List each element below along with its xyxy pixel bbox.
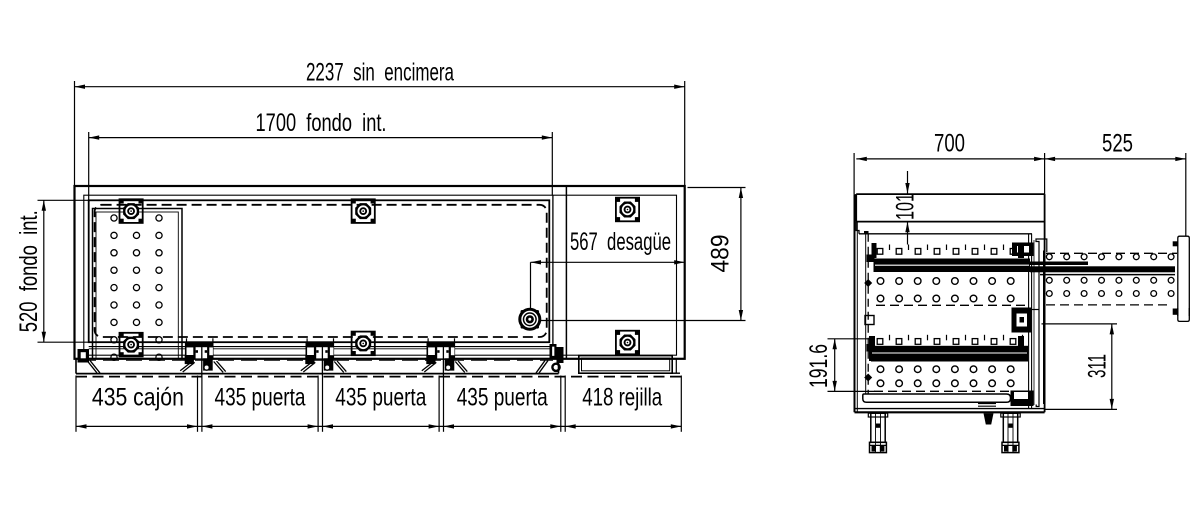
- svg-text:435 puerta: 435 puerta: [335, 384, 426, 412]
- svg-text:489: 489: [707, 235, 735, 273]
- svg-text:435 puerta: 435 puerta: [215, 384, 306, 412]
- svg-text:567 desagüe: 567 desagüe: [570, 228, 671, 256]
- svg-text:435 cajón: 435 cajón: [92, 384, 184, 412]
- svg-text:525: 525: [1102, 129, 1133, 157]
- svg-text:101: 101: [892, 193, 920, 220]
- svg-text:520 fondo int.: 520 fondo int.: [15, 210, 43, 332]
- svg-text:2237 sin encimera: 2237 sin encimera: [306, 58, 454, 86]
- svg-text:700: 700: [934, 129, 965, 157]
- svg-text:1700 fondo int.: 1700 fondo int.: [256, 109, 387, 137]
- svg-text:418 rejilla: 418 rejilla: [582, 384, 662, 412]
- svg-text:435 puerta: 435 puerta: [457, 384, 548, 412]
- svg-text:191.6: 191.6: [805, 344, 833, 388]
- svg-text:311: 311: [1084, 354, 1112, 378]
